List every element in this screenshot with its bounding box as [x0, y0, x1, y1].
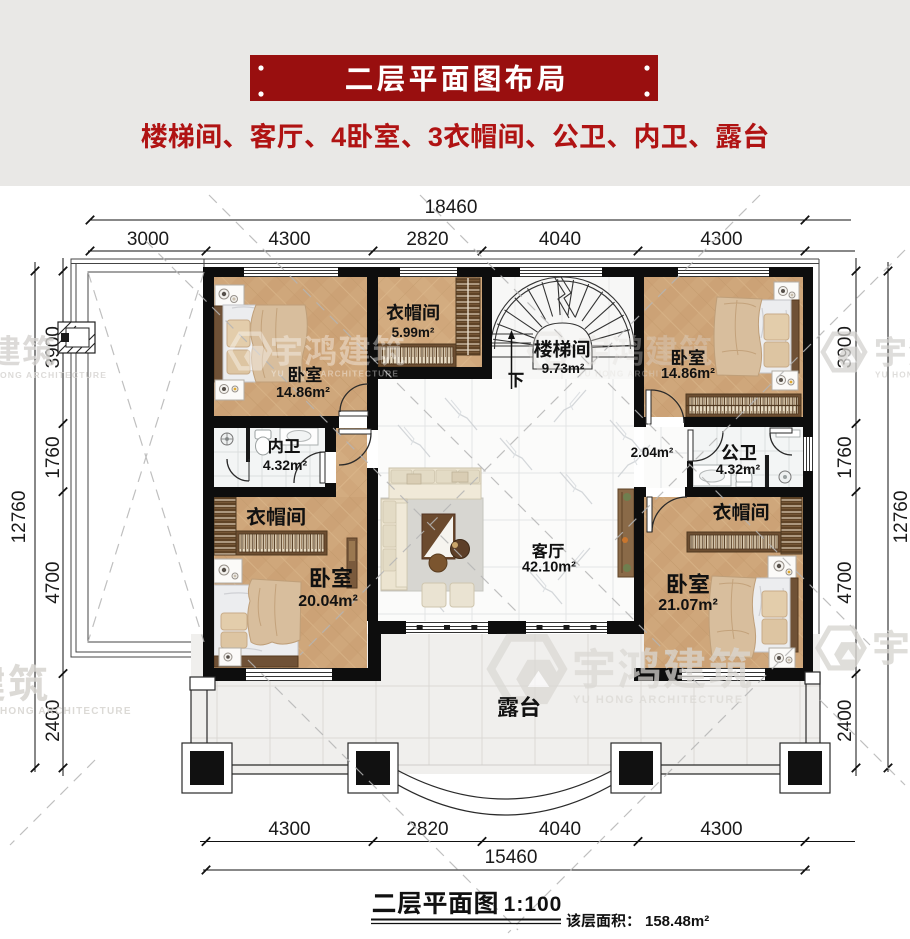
svg-text:4300: 4300: [700, 819, 742, 840]
svg-text:ONG ARCHITECTURE: ONG ARCHITECTURE: [0, 370, 107, 380]
svg-text:1760: 1760: [43, 436, 64, 478]
svg-text:20.04m²: 20.04m²: [298, 593, 358, 610]
svg-text:9.73m²: 9.73m²: [542, 361, 585, 376]
svg-text:2820: 2820: [406, 229, 448, 250]
svg-text:42.10m²: 42.10m²: [522, 560, 576, 576]
svg-text:3: 3: [428, 122, 443, 152]
svg-text:12760: 12760: [891, 491, 910, 544]
svg-text:4300: 4300: [268, 819, 310, 840]
svg-text:4700: 4700: [835, 562, 856, 604]
svg-text:1:100: 1:100: [504, 893, 563, 916]
svg-text:21.07m²: 21.07m²: [658, 597, 718, 614]
svg-text:2820: 2820: [406, 819, 448, 840]
svg-text:4300: 4300: [268, 229, 310, 250]
svg-text:YU HONG ARCHITECTURE: YU HONG ARCHITECTURE: [573, 694, 744, 706]
svg-text:2400: 2400: [835, 700, 856, 742]
svg-text:4040: 4040: [539, 819, 581, 840]
svg-text:4.32m²: 4.32m²: [263, 457, 308, 473]
svg-text:18460: 18460: [425, 197, 478, 218]
svg-text:2.04m²: 2.04m²: [631, 445, 674, 460]
svg-text:158.48m²: 158.48m²: [645, 913, 709, 930]
svg-text:5.99m²: 5.99m²: [392, 325, 435, 340]
svg-text:1760: 1760: [835, 436, 856, 478]
svg-text:YU HONG ARCHITECTURE: YU HONG ARCHITECTURE: [875, 370, 910, 379]
svg-text:4300: 4300: [700, 229, 742, 250]
svg-text:4: 4: [331, 122, 346, 152]
svg-text:14.86m²: 14.86m²: [276, 385, 330, 401]
svg-text:4040: 4040: [539, 229, 581, 250]
svg-text:4700: 4700: [43, 562, 64, 604]
svg-text:15460: 15460: [485, 847, 538, 868]
svg-text:12760: 12760: [9, 491, 30, 544]
svg-text:4.32m²: 4.32m²: [716, 461, 761, 477]
svg-text:3000: 3000: [127, 229, 169, 250]
svg-text:14.86m²: 14.86m²: [661, 366, 715, 382]
svg-text:HONG ARCHITECTURE: HONG ARCHITECTURE: [0, 706, 132, 717]
